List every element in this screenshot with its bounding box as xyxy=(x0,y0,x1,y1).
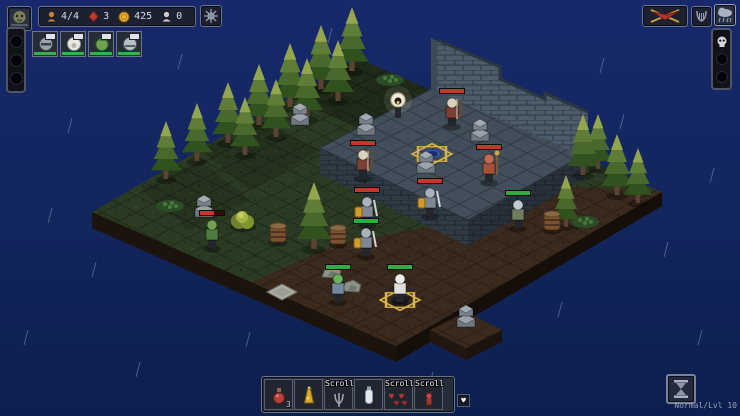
skull-icon xyxy=(715,36,729,48)
heart-toggle-button[interactable]: ♥ xyxy=(457,394,470,407)
prop-barrel xyxy=(543,211,561,235)
item-slot-red-potion[interactable]: 3 xyxy=(264,379,293,410)
resource-gems: 3 xyxy=(88,11,109,22)
dot xyxy=(10,72,23,85)
red-potion-icon xyxy=(271,387,287,407)
resource-units: 4/4 xyxy=(46,11,79,22)
prop-plant xyxy=(376,74,404,86)
scroll-label: Scroll xyxy=(415,379,442,388)
hourglass-icon xyxy=(668,376,694,402)
yellow-flask-icon xyxy=(301,386,317,406)
snowflake-emblem-icon xyxy=(201,6,221,26)
left-dots-panel[interactable] xyxy=(6,27,26,93)
prop-pillar xyxy=(457,305,475,327)
portrait-badge xyxy=(101,33,112,40)
resource-gems-value: 3 xyxy=(103,12,109,22)
dot xyxy=(10,54,23,67)
portrait-green-creature[interactable] xyxy=(88,31,114,57)
grey-claw-icon xyxy=(331,392,347,408)
resource-souls-value: 0 xyxy=(176,12,182,22)
portrait-badge xyxy=(129,33,140,40)
svg-text:♥: ♥ xyxy=(394,399,399,407)
scroll-label: Scroll xyxy=(385,379,412,388)
prop-pillar xyxy=(471,119,489,141)
portrait-knight[interactable] xyxy=(32,31,58,57)
svg-text:♥: ♥ xyxy=(402,399,407,407)
red-imp-icon xyxy=(421,391,437,409)
prop-pillar xyxy=(291,103,309,125)
lyre-button[interactable] xyxy=(691,6,712,27)
right-skull-panel[interactable] xyxy=(711,28,732,90)
portrait-white-hood[interactable] xyxy=(60,31,86,57)
resource-souls: 0 xyxy=(161,11,182,22)
red-gem-icon xyxy=(88,11,99,22)
battle-banner-icon xyxy=(643,6,687,26)
item-slot-scroll-claw[interactable]: Scroll xyxy=(324,379,353,410)
portrait-round-helm[interactable] xyxy=(116,31,142,57)
item-slot-white-bottle[interactable] xyxy=(354,379,383,410)
white-bottle-icon xyxy=(361,386,377,406)
dot xyxy=(716,53,728,65)
item-slot-scroll-imp[interactable]: Scroll xyxy=(414,379,443,410)
portrait-badge xyxy=(45,33,56,40)
rain-cloud-icon xyxy=(715,5,735,25)
prop-pillar xyxy=(417,151,435,173)
heart-glyph: ♥ xyxy=(461,396,466,405)
lyre-icon xyxy=(692,7,711,26)
prop-barrel xyxy=(329,225,347,249)
pale-bust-icon xyxy=(161,11,172,22)
resource-units-value: 4/4 xyxy=(61,12,79,22)
battle-banner-button[interactable] xyxy=(642,5,688,27)
item-count: 3 xyxy=(286,400,291,409)
item-slot-scroll-hearts[interactable]: Scroll ♥♥ ♥♥ xyxy=(384,379,413,410)
portrait-hp-bar xyxy=(90,52,112,55)
portrait-hp-bar xyxy=(34,52,56,55)
difficulty-level-text: Normal/Lvl 10 xyxy=(674,401,737,410)
inventory-bar: 3 Scroll Scroll ♥ xyxy=(261,376,455,413)
resource-gold-value: 425 xyxy=(134,12,152,22)
dot xyxy=(716,71,728,83)
hourglass-button[interactable] xyxy=(666,374,696,404)
prop-plant xyxy=(156,200,184,212)
party-bar xyxy=(32,31,142,57)
game-scene[interactable] xyxy=(0,0,740,416)
dot xyxy=(10,35,23,48)
unit-bust-icon xyxy=(46,11,57,22)
prop-barrel xyxy=(269,223,287,247)
hearts-icon: ♥♥ ♥♥ xyxy=(388,391,410,407)
portrait-badge xyxy=(73,33,84,40)
prop-pillar xyxy=(357,113,375,135)
weather-rain-button[interactable] xyxy=(714,4,736,26)
resource-gold: 425 xyxy=(118,11,152,23)
portrait-hp-bar xyxy=(62,52,84,55)
gold-coin-icon xyxy=(118,11,130,23)
portrait-hp-bar xyxy=(118,52,140,55)
item-slot-yellow-flask[interactable] xyxy=(294,379,323,410)
emblem-button[interactable] xyxy=(200,5,222,27)
game-window: 4/4 3 425 0 xyxy=(0,0,740,416)
resource-bar: 4/4 3 425 0 xyxy=(38,6,196,27)
scroll-label: Scroll xyxy=(325,379,352,388)
